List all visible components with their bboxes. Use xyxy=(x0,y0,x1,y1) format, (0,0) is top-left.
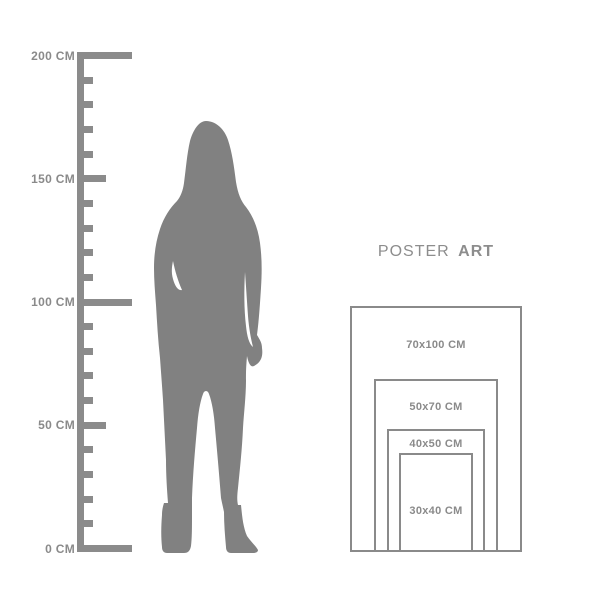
brand-title-regular: POSTER xyxy=(378,243,450,260)
poster-size-label-70x100: 70x100 CM xyxy=(350,338,523,352)
poster-size-label-40x50: 40x50 CM xyxy=(387,437,486,451)
poster-size-label-30x40: 30x40 CM xyxy=(399,504,473,518)
poster-size-guide: 200 CM150 CM100 CM50 CM0 CM POSTER ART 7… xyxy=(0,0,600,600)
poster-size-rect-30x40 xyxy=(399,453,473,552)
brand-title-bold: ART xyxy=(458,243,494,260)
silhouette-body xyxy=(154,121,262,553)
brand-title: POSTER ART xyxy=(350,243,522,260)
poster-size-label-50x70: 50x70 CM xyxy=(374,400,497,414)
